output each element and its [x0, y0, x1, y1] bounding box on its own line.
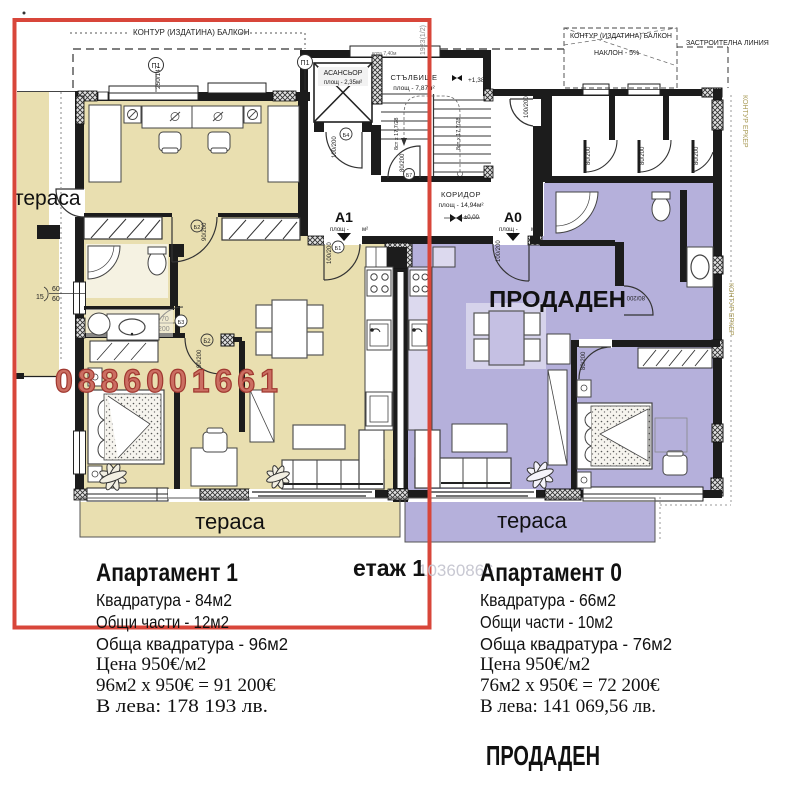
svg-text:80/200: 80/200 [626, 294, 645, 300]
svg-text:Квадратура - 84м2: Квадратура - 84м2 [96, 590, 232, 610]
svg-text:Б2: Б2 [203, 339, 211, 345]
svg-text:Квадратура - 66м2: Квадратура - 66м2 [480, 590, 616, 610]
svg-text:Б1: Б1 [335, 246, 342, 252]
svg-text:0886001661: 0886001661 [55, 363, 283, 399]
svg-text:8ст x 17,7/28: 8ст x 17,7/28 [456, 118, 462, 150]
svg-text:60: 60 [52, 286, 60, 293]
svg-text:Общи части - 10м2: Общи части - 10м2 [480, 612, 613, 632]
svg-text:кота 7,40м: кота 7,40м [372, 51, 397, 57]
svg-text:+1,38: +1,38 [468, 77, 485, 84]
svg-text:Апартамент 1: Апартамент 1 [96, 559, 238, 587]
svg-text:80/200: 80/200 [694, 146, 700, 165]
svg-text:А0: А0 [504, 209, 522, 225]
svg-text:тераса: тераса [195, 509, 266, 534]
svg-text:96м2 х 950€ = 91 200€: 96м2 х 950€ = 91 200€ [96, 675, 276, 696]
svg-text:тераса: тераса [14, 187, 81, 210]
svg-text:м²: м² [362, 227, 368, 233]
svg-text:100/200: 100/200 [332, 136, 338, 158]
svg-text:8ст x 17,7/28: 8ст x 17,7/28 [394, 118, 400, 150]
svg-text:1923(1/2): 1923(1/2) [420, 25, 427, 55]
svg-text:Б3: Б3 [178, 320, 185, 326]
svg-text:тераса: тераса [497, 508, 568, 533]
svg-text:В лева: 141 069,56 лв.: В лева: 141 069,56 лв. [480, 696, 656, 717]
svg-text:ПРОДАДЕН: ПРОДАДЕН [486, 740, 600, 771]
svg-text:Общи части - 12м2: Общи части - 12м2 [96, 612, 229, 632]
svg-text:П1: П1 [301, 60, 310, 67]
svg-text:Апартамент 0: Апартамент 0 [480, 559, 622, 587]
svg-text:60: 60 [52, 296, 60, 303]
svg-text:250/147: 250/147 [155, 65, 162, 89]
svg-text:Обща квадратура - 76м2: Обща квадратура - 76м2 [480, 634, 672, 654]
svg-text:площ -: площ - [499, 227, 518, 233]
svg-text:ЗАСТРОИТЕЛНА ЛИНИЯ: ЗАСТРОИТЕЛНА ЛИНИЯ [686, 40, 769, 47]
svg-text:В лева: 178 193 лв.: В лева: 178 193 лв. [96, 696, 268, 717]
svg-text:АСАНСЬОР: АСАНСЬОР [324, 70, 363, 77]
svg-text:КОНТУР ЕРКЕР: КОНТУР ЕРКЕР [741, 95, 748, 148]
svg-text:80/200: 80/200 [586, 146, 592, 165]
svg-text:80/200: 80/200 [400, 153, 406, 172]
svg-text:КОРИДОР: КОРИДОР [441, 190, 481, 199]
svg-text:Б4: Б4 [343, 133, 350, 139]
svg-text:Цена 950€/м2: Цена 950€/м2 [480, 654, 590, 675]
svg-text:80/200: 80/200 [640, 146, 646, 165]
svg-text:КОНТУР (ИЗДАТИНА) БАЛКОН: КОНТУР (ИЗДАТИНА) БАЛКОН [570, 33, 672, 40]
svg-text:Обща квадратура - 96м2: Обща квадратура - 96м2 [96, 634, 288, 654]
svg-text:15: 15 [36, 294, 44, 301]
svg-text:площ - 2,35м²: площ - 2,35м² [324, 80, 362, 86]
svg-text:100/200: 100/200 [524, 96, 530, 118]
svg-text:76м2 х 950€ = 72 200€: 76м2 х 950€ = 72 200€ [480, 675, 660, 696]
svg-text:етаж 1: етаж 1 [353, 555, 425, 581]
svg-text:Цена 950€/м2: Цена 950€/м2 [96, 654, 206, 675]
svg-text:А1: А1 [335, 209, 353, 225]
svg-text:НАКЛОН - 5%: НАКЛОН - 5% [594, 50, 639, 57]
svg-text:ПРОДАДЕН: ПРОДАДЕН [489, 286, 626, 312]
svg-text:КОНТУР ЕРКЕР: КОНТУР ЕРКЕР [727, 283, 734, 336]
svg-text:м²: м² [531, 227, 537, 233]
svg-text:100/200: 100/200 [496, 240, 502, 262]
svg-text:площ -: площ - [330, 227, 349, 233]
svg-text:площ - 14,94м²: площ - 14,94м² [438, 202, 484, 209]
svg-text:Б2: Б2 [194, 225, 201, 231]
svg-text:80/200: 80/200 [581, 351, 587, 370]
svg-text:Б7: Б7 [406, 173, 412, 179]
svg-text:КОНТУР (ИЗДАТИНА) БАЛКОН: КОНТУР (ИЗДАТИНА) БАЛКОН [133, 28, 250, 37]
